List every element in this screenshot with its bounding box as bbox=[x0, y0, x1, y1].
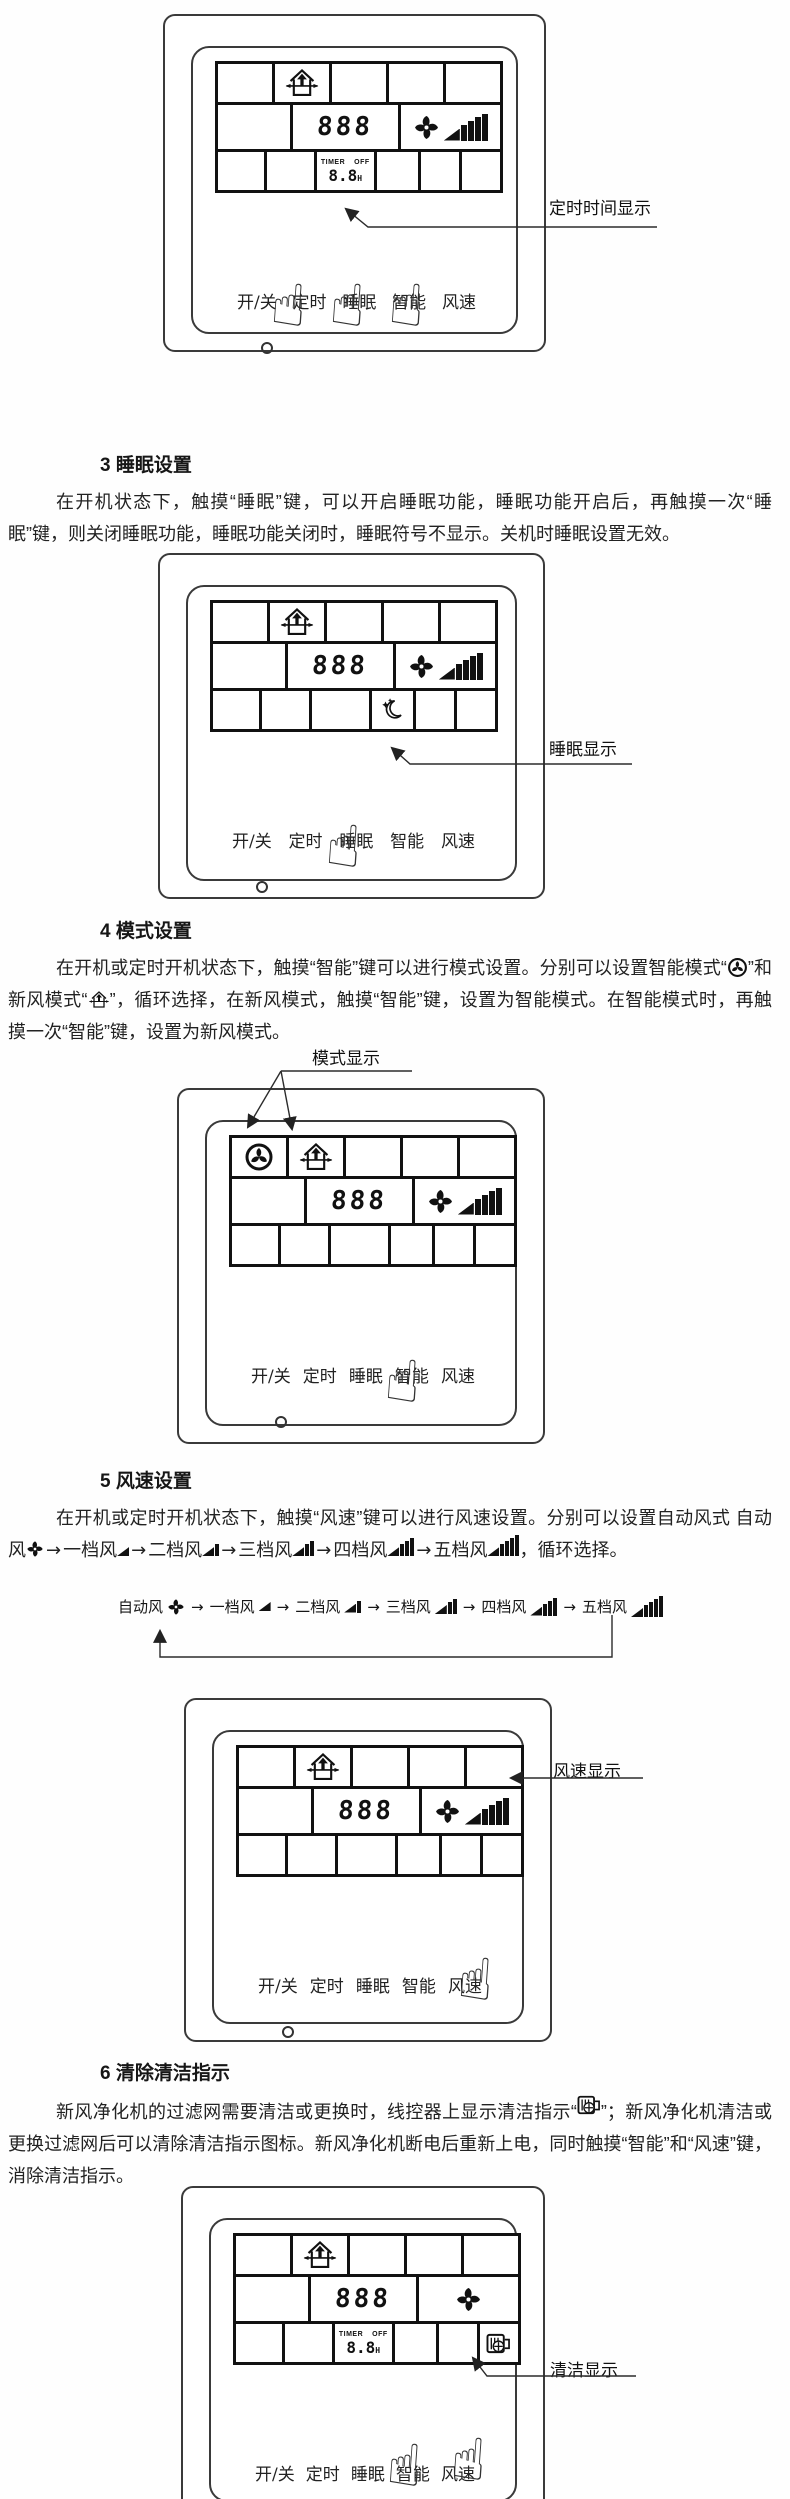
lcd-cell bbox=[416, 691, 454, 729]
lcd-temperature-cell: 888 bbox=[293, 105, 398, 149]
arrow-right-icon: → bbox=[277, 1598, 290, 1616]
speed-bars-1-icon bbox=[117, 1547, 129, 1556]
indicator-led bbox=[275, 1416, 287, 1428]
lcd-cell bbox=[403, 1138, 457, 1176]
body-text: 在开机或定时开机状态下，触摸“风速”键可以进行风速设置。分别可以设置自动风式 bbox=[56, 1508, 730, 1528]
body-text: 循环选择。 bbox=[537, 1540, 627, 1560]
power-button[interactable]: 开/关 bbox=[232, 827, 272, 852]
clean-filter-icon bbox=[577, 2094, 601, 2116]
speed-bars-4-icon bbox=[387, 1538, 414, 1556]
arrow-right-icon: → bbox=[46, 1540, 61, 1561]
pointing-hand-icon: ☝ bbox=[385, 2435, 424, 2495]
lcd-cell bbox=[327, 603, 381, 641]
pointing-hand-icon: ☝ bbox=[387, 275, 426, 335]
fan-speed-cycle-diagram: 自动风→一档风→二档风→三档风→四档风→五档风 bbox=[118, 1596, 663, 1617]
speed-label-3: 三档风 bbox=[386, 1596, 431, 1617]
lcd-temperature-cell: 888 bbox=[288, 644, 393, 688]
power-button[interactable]: 开/关 bbox=[251, 1362, 291, 1387]
sleep-button[interactable]: 睡眠 bbox=[351, 2460, 385, 2485]
lcd-cell bbox=[218, 152, 264, 190]
timer-readout: TIMEROFF 8.8H bbox=[321, 159, 370, 184]
lcd-cell bbox=[213, 603, 267, 641]
speed-bars-4-icon bbox=[530, 1598, 557, 1616]
lcd-sleep-cell bbox=[372, 691, 413, 729]
lcd-cell bbox=[353, 1748, 407, 1786]
lcd-cell bbox=[346, 1138, 400, 1176]
power-button[interactable]: 开/关 bbox=[255, 2460, 295, 2485]
section-heading: 3 睡眠设置 bbox=[100, 450, 772, 477]
arrow-right-icon: → bbox=[463, 1598, 476, 1616]
callout-sleep-display: 睡眠显示 bbox=[549, 735, 617, 760]
lcd-digits: 888 bbox=[330, 1186, 388, 1216]
lcd-cell bbox=[483, 1836, 521, 1874]
arrow-right-icon: → bbox=[221, 1540, 236, 1561]
fresh-air-mode-icon bbox=[298, 1141, 334, 1174]
lcd-cell bbox=[389, 64, 443, 102]
timer-button[interactable]: 定时 bbox=[289, 827, 323, 852]
pointing-hand-icon: ☝ bbox=[383, 1351, 422, 1411]
arrow-right-icon: → bbox=[416, 1540, 431, 1561]
timer-button[interactable]: 定时 bbox=[306, 2460, 340, 2485]
fan-speed-bars-icon bbox=[465, 1798, 509, 1825]
fan-speed-bars-icon bbox=[439, 653, 483, 680]
pointing-hand-icon: ☝ bbox=[269, 275, 308, 335]
section-body: 在开机或定时开机状态下，触摸“智能”键可以进行模式设置。分别可以设置智能模式“”… bbox=[8, 952, 772, 1048]
lcd-digits: 888 bbox=[334, 2284, 392, 2314]
smart-mode-icon bbox=[244, 1142, 274, 1172]
lcd-temperature-cell: 888 bbox=[311, 2277, 416, 2321]
lcd-cell bbox=[464, 2236, 518, 2274]
lcd-cell bbox=[288, 1836, 334, 1874]
speed-label-4: 四档风 bbox=[481, 1596, 526, 1617]
timer-button[interactable]: 定时 bbox=[310, 1972, 344, 1997]
lcd-cell bbox=[338, 1836, 395, 1874]
lcd-fan-cell bbox=[415, 1179, 514, 1223]
pointing-hand-icon: ☝ bbox=[456, 1949, 495, 2009]
lcd-display: 888 TIMEROFF 8.8H bbox=[233, 2233, 521, 2365]
smart-mode-icon bbox=[727, 957, 748, 978]
fan-icon bbox=[455, 2286, 482, 2313]
timer-off-label: OFF bbox=[354, 159, 370, 166]
speed-label-1: 一档风 bbox=[210, 1596, 255, 1617]
wall-controller-5: 888 TIMEROFF 8.8H 开/关 定时 睡眠 bbox=[181, 2186, 545, 2499]
callout-fan-display: 风速显示 bbox=[553, 1757, 621, 1782]
lcd-cell bbox=[462, 152, 500, 190]
lcd-cell bbox=[398, 1836, 439, 1874]
section-heading: 4 模式设置 bbox=[100, 916, 772, 943]
fresh-air-mode-icon bbox=[284, 67, 320, 100]
lcd-clean-cell bbox=[480, 2324, 518, 2362]
lcd-display: 888 TIMEROFF 8.8H bbox=[215, 61, 503, 193]
lcd-cell bbox=[239, 1748, 293, 1786]
fan-icon bbox=[167, 1598, 185, 1616]
lcd-cell bbox=[442, 1836, 480, 1874]
indicator-led bbox=[256, 881, 268, 893]
lcd-fan-cell bbox=[401, 105, 500, 149]
timer-value: 8.8 bbox=[328, 166, 357, 185]
arrow-right-icon: → bbox=[131, 1540, 146, 1561]
lcd-cell bbox=[439, 2324, 477, 2362]
lcd-cell bbox=[262, 691, 308, 729]
lcd-cell bbox=[446, 64, 500, 102]
lcd-cell bbox=[332, 64, 386, 102]
fan-speed-button[interactable]: 风速 bbox=[442, 288, 476, 313]
timer-label: TIMER bbox=[339, 2331, 363, 2338]
fan-speed-bars-icon bbox=[458, 1188, 502, 1215]
lcd-digits: 888 bbox=[316, 112, 374, 142]
section-mode-setting: 4 模式设置 在开机或定时开机状态下，触摸“智能”键可以进行模式设置。分别可以设… bbox=[8, 916, 772, 1048]
speed-bars-3-icon bbox=[292, 1541, 314, 1556]
speed-label-2: 二档风 bbox=[295, 1596, 340, 1617]
lcd-cell bbox=[239, 1789, 311, 1833]
section-body: 新风净化机的过滤网需要清洁或更换时，线控器上显示清洁指示“”；新风净化机清洁或更… bbox=[8, 2094, 772, 2192]
lcd-cell bbox=[239, 1836, 285, 1874]
lcd-cell bbox=[312, 691, 369, 729]
section-heading: 6 清除清洁指示 bbox=[100, 2058, 772, 2085]
timer-value: 8.8 bbox=[346, 2338, 375, 2357]
arrow-right-icon: → bbox=[563, 1598, 576, 1616]
speed-label-5: 五档风 bbox=[582, 1596, 627, 1617]
speed-bars-5-icon bbox=[631, 1596, 663, 1617]
callout-timer-display: 定时时间显示 bbox=[549, 194, 651, 219]
manual-page: { "controller_buttons": ["开/关", "定时", "睡… bbox=[0, 0, 790, 2499]
lcd-cell bbox=[236, 2277, 308, 2321]
timer-unit: H bbox=[357, 174, 362, 183]
lcd-cell bbox=[410, 1748, 464, 1786]
wall-controller-2: 888 开/关 定时 睡眠 智能 风速 ☝ bbox=[158, 553, 545, 899]
timer-off-label: OFF bbox=[372, 2331, 388, 2338]
lcd-cell bbox=[476, 1226, 514, 1264]
fresh-air-mode-icon bbox=[305, 1751, 341, 1784]
controller-touch-panel: 888 开/关 定时 睡眠 智能 风速 bbox=[205, 1120, 517, 1426]
lcd-cell bbox=[460, 1138, 514, 1176]
body-text: ”，循环选择，在新风模式，触摸“智能”键，设置为智能模式。在智能模式时，再触摸一… bbox=[8, 990, 772, 1042]
body-text: ， bbox=[519, 1540, 537, 1560]
lcd-smart-cell bbox=[232, 1138, 286, 1176]
arrow-right-icon: → bbox=[367, 1598, 380, 1616]
lcd-cell bbox=[395, 2324, 436, 2362]
lcd-cell bbox=[270, 603, 324, 641]
lcd-temperature-cell: 888 bbox=[307, 1179, 412, 1223]
sleep-button[interactable]: 睡眠 bbox=[349, 1362, 383, 1387]
body-text: 在开机或定时开机状态下，触摸“智能”键可以进行模式设置。分别可以设置智能模式“ bbox=[56, 958, 727, 978]
lcd-digits: 888 bbox=[337, 1796, 395, 1826]
lcd-cell bbox=[285, 2324, 331, 2362]
lcd-cell bbox=[350, 2236, 404, 2274]
indicator-led bbox=[282, 2026, 294, 2038]
speed-bars-5-icon bbox=[487, 1535, 519, 1556]
timer-readout: TIMEROFF 8.8H bbox=[339, 2331, 388, 2356]
section-heading: 5 风速设置 bbox=[100, 1466, 772, 1493]
lcd-cell bbox=[232, 1226, 278, 1264]
lcd-cell bbox=[275, 64, 329, 102]
timer-unit: H bbox=[375, 2346, 380, 2355]
callout-mode-display: 模式显示 bbox=[312, 1044, 380, 1069]
lcd-cell bbox=[467, 1748, 521, 1786]
lcd-fan-cell bbox=[422, 1789, 521, 1833]
fan-speed-button[interactable]: 风速 bbox=[441, 827, 475, 852]
lcd-cell bbox=[391, 1226, 432, 1264]
cycle-loop-arrow bbox=[160, 1615, 612, 1657]
lcd-cell bbox=[377, 152, 418, 190]
lcd-cell bbox=[407, 2236, 461, 2274]
speed-label-5: 五档风 bbox=[433, 1540, 487, 1560]
clean-filter-icon bbox=[486, 2332, 511, 2355]
pointing-hand-icon: ☝ bbox=[449, 2429, 488, 2489]
lcd-cell bbox=[267, 152, 313, 190]
lcd-cell bbox=[441, 603, 495, 641]
callout-clean-display: 清洁显示 bbox=[550, 2356, 618, 2381]
arrow-right-icon: → bbox=[191, 1598, 204, 1616]
section-fan-speed-setting: 5 风速设置 在开机或定时开机状态下，触摸“风速”键可以进行风速设置。分别可以设… bbox=[8, 1466, 772, 1567]
lcd-cell bbox=[421, 152, 459, 190]
lcd-cell bbox=[281, 1226, 327, 1264]
wall-controller-4: 888 开/关 定时 睡眠 智能 风速 ☝ bbox=[184, 1698, 552, 2042]
fan-icon bbox=[408, 653, 435, 680]
lcd-cell bbox=[213, 644, 285, 688]
lcd-cell bbox=[213, 691, 259, 729]
lcd-fan-cell bbox=[396, 644, 495, 688]
lcd-timer-cell: TIMEROFF 8.8H bbox=[317, 152, 374, 190]
lcd-cell bbox=[232, 1179, 304, 1223]
section-body: 在开机或定时开机状态下，触摸“风速”键可以进行风速设置。分别可以设置自动风式 自… bbox=[8, 1502, 772, 1567]
power-button[interactable]: 开/关 bbox=[258, 1972, 298, 1997]
speed-bars-2-icon bbox=[202, 1544, 219, 1556]
lcd-cell bbox=[218, 64, 272, 102]
speed-bars-2-icon bbox=[344, 1601, 361, 1613]
lcd-cell bbox=[293, 2236, 347, 2274]
sleep-moon-icon bbox=[379, 697, 405, 723]
fan-icon bbox=[434, 1798, 461, 1825]
fresh-air-mode-icon bbox=[302, 2239, 338, 2272]
lcd-cell bbox=[236, 2324, 282, 2362]
section-clean-indicator: 6 清除清洁指示 新风净化机的过滤网需要清洁或更换时，线控器上显示清洁指示“”；… bbox=[8, 2058, 772, 2192]
speed-label-1: 一档风 bbox=[63, 1540, 117, 1560]
lcd-cell bbox=[296, 1748, 350, 1786]
speed-label-4: 四档风 bbox=[333, 1540, 387, 1560]
body-text: 新风净化机的过滤网需要清洁或更换时，线控器上显示清洁指示“ bbox=[56, 2102, 577, 2122]
sleep-button[interactable]: 睡眠 bbox=[356, 1972, 390, 1997]
fan-icon bbox=[427, 1188, 454, 1215]
fresh-air-mode-icon bbox=[88, 990, 110, 1010]
lcd-cell bbox=[384, 603, 438, 641]
timer-button[interactable]: 定时 bbox=[303, 1362, 337, 1387]
lcd-cell bbox=[236, 2236, 290, 2274]
fan-speed-bars-icon bbox=[444, 114, 488, 141]
lcd-digits: 888 bbox=[311, 651, 369, 681]
lcd-cell bbox=[457, 691, 495, 729]
speed-bars-1-icon bbox=[259, 1602, 271, 1611]
fresh-air-mode-icon bbox=[279, 606, 315, 639]
lcd-cell bbox=[289, 1138, 343, 1176]
fan-icon bbox=[413, 114, 440, 141]
lcd-display: 888 bbox=[236, 1745, 524, 1877]
section-sleep-setting: 3 睡眠设置 在开机状态下，触摸“睡眠”键，可以开启睡眠功能，睡眠功能开启后，再… bbox=[8, 450, 772, 550]
indicator-led bbox=[261, 342, 273, 354]
lcd-cell bbox=[218, 105, 290, 149]
smart-button[interactable]: 智能 bbox=[390, 827, 424, 852]
lcd-fan-cell bbox=[419, 2277, 518, 2321]
lcd-temperature-cell: 888 bbox=[314, 1789, 419, 1833]
speed-label-3: 三档风 bbox=[238, 1540, 292, 1560]
pointing-hand-icon: ☝ bbox=[328, 275, 367, 335]
lcd-cell bbox=[331, 1226, 388, 1264]
speed-label-auto: 自动风 bbox=[118, 1596, 163, 1617]
speed-bars-3-icon bbox=[435, 1599, 457, 1614]
wall-controller-1: 888 TIMEROFF 8.8H 开/关 定时 睡眠 bbox=[163, 14, 546, 352]
fan-icon bbox=[26, 1540, 44, 1558]
speed-label-2: 二档风 bbox=[148, 1540, 202, 1560]
smart-button[interactable]: 智能 bbox=[402, 1972, 436, 1997]
pointing-hand-icon: ☝ bbox=[324, 816, 363, 876]
lcd-display: 888 bbox=[210, 600, 498, 732]
arrow-right-icon: → bbox=[316, 1540, 331, 1561]
lcd-timer-cell: TIMEROFF 8.8H bbox=[335, 2324, 392, 2362]
lcd-cell bbox=[435, 1226, 473, 1264]
section-body: 在开机状态下，触摸“睡眠”键，可以开启睡眠功能，睡眠功能开启后，再触摸一次“睡眠… bbox=[8, 486, 772, 550]
lcd-display: 888 bbox=[229, 1135, 517, 1267]
fan-speed-button[interactable]: 风速 bbox=[441, 1362, 475, 1387]
timer-label: TIMER bbox=[321, 159, 345, 166]
wall-controller-3: 888 开/关 定时 睡眠 智能 风速 ☝ bbox=[177, 1088, 545, 1444]
